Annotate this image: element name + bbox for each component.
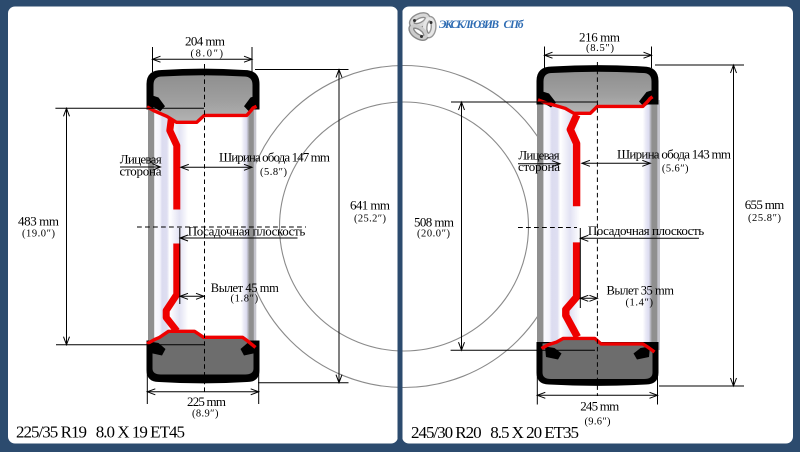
svg-text:Ширина обода 143 mm: Ширина обода 143 mm bbox=[617, 146, 731, 161]
svg-text:сторона: сторона bbox=[120, 163, 162, 178]
svg-text:(8.0″): (8.0″) bbox=[191, 49, 224, 60]
svg-text:Ширина обода 147 mm: Ширина обода 147 mm bbox=[219, 150, 330, 165]
svg-text:508 mm: 508 mm bbox=[414, 215, 454, 230]
svg-text:(5.8″): (5.8″) bbox=[260, 167, 288, 178]
svg-text:483 mm: 483 mm bbox=[18, 214, 59, 229]
svg-text:Посадочная плоскость: Посадочная плоскость bbox=[588, 223, 704, 238]
svg-text:Посадочная плоскость: Посадочная плоскость bbox=[188, 223, 306, 238]
svg-text:Вылет 35 mm: Вылет 35 mm bbox=[606, 284, 674, 298]
svg-text:655 mm: 655 mm bbox=[745, 197, 785, 212]
svg-text:ЭКСКЛЮЗИВ: ЭКСКЛЮЗИВ bbox=[439, 19, 499, 31]
svg-text:225/35 R19 8.0 X 19 ET45: 225/35 R19 8.0 X 19 ET45 bbox=[16, 423, 185, 442]
svg-text:(19.0″): (19.0″) bbox=[22, 229, 56, 240]
svg-text:(8.9″): (8.9″) bbox=[192, 408, 219, 419]
svg-text:245/30 R20 8.5 X 20 ET35: 245/30 R20 8.5 X 20 ET35 bbox=[411, 423, 579, 442]
svg-text:204 mm: 204 mm bbox=[185, 34, 225, 49]
svg-text:(25.8″): (25.8″) bbox=[748, 213, 782, 224]
svg-text:245 mm: 245 mm bbox=[580, 399, 619, 414]
svg-text:(5.6″): (5.6″) bbox=[662, 163, 689, 174]
svg-text:(8.5″): (8.5″) bbox=[586, 43, 615, 54]
svg-text:(25.2″): (25.2″) bbox=[354, 213, 387, 224]
svg-text:(20.0″): (20.0″) bbox=[417, 229, 451, 240]
svg-text:(1.4″): (1.4″) bbox=[625, 298, 653, 309]
svg-text:(9.6″): (9.6″) bbox=[585, 416, 612, 427]
svg-text:(1.8″): (1.8″) bbox=[231, 294, 259, 305]
svg-text:СПб: СПб bbox=[504, 19, 525, 31]
svg-text:225 mm: 225 mm bbox=[187, 394, 226, 409]
svg-text:641 mm: 641 mm bbox=[350, 198, 390, 213]
